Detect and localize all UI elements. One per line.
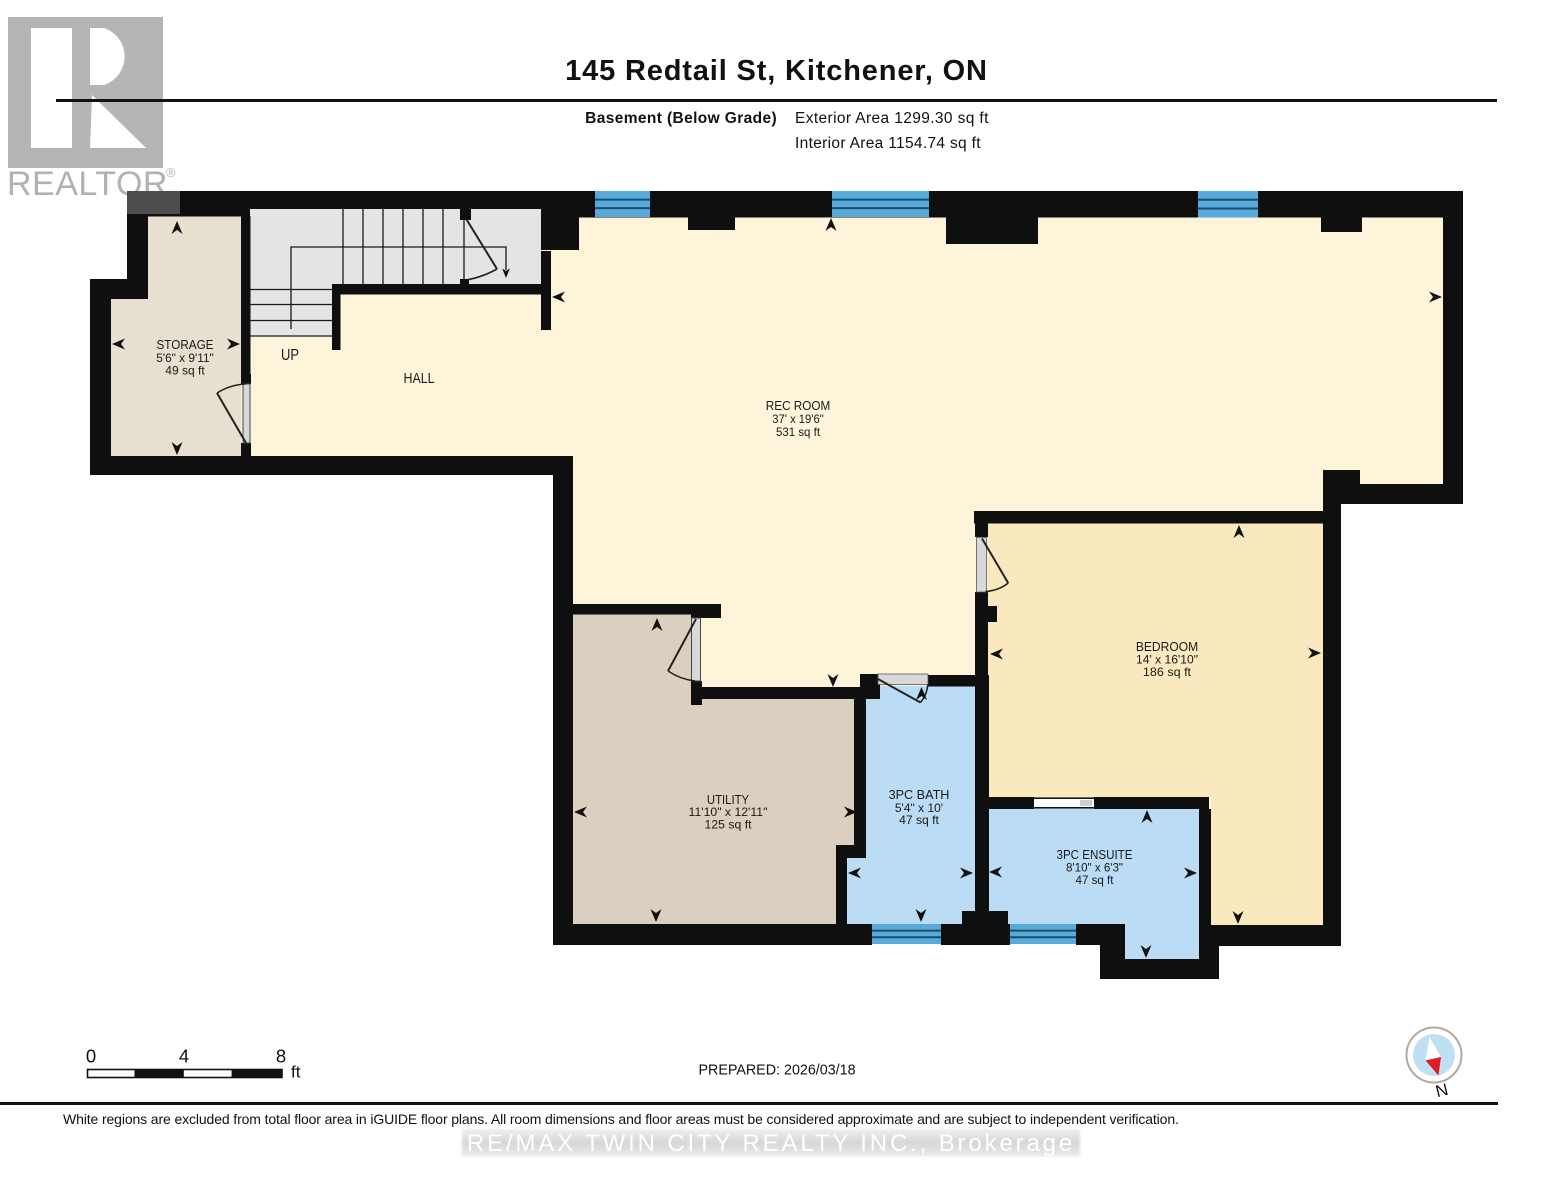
svg-text:4: 4	[179, 1046, 189, 1067]
svg-text:125 sq ft: 125 sq ft	[705, 818, 753, 832]
svg-text:531 sq ft: 531 sq ft	[776, 425, 821, 439]
svg-text:ft: ft	[291, 1063, 301, 1082]
svg-text:47 sq ft: 47 sq ft	[899, 813, 939, 827]
svg-text:HALL: HALL	[404, 370, 435, 387]
svg-text:37' x 19'6": 37' x 19'6"	[772, 412, 823, 426]
svg-text:47 sq ft: 47 sq ft	[1076, 873, 1115, 887]
svg-text:186 sq ft: 186 sq ft	[1143, 665, 1192, 679]
svg-text:STORAGE: STORAGE	[157, 337, 214, 352]
svg-text:PREPARED: 2026/03/18: PREPARED: 2026/03/18	[698, 1063, 855, 1079]
svg-text:8: 8	[276, 1046, 286, 1067]
svg-text:REC ROOM: REC ROOM	[766, 398, 830, 413]
svg-text:RE/MAX TWIN CITY REALTY INC.,: RE/MAX TWIN CITY REALTY INC., Brokerage	[467, 1130, 1075, 1157]
svg-text:49 sq ft: 49 sq ft	[165, 364, 205, 378]
svg-text:N: N	[1434, 1080, 1451, 1101]
svg-text:3PC BATH: 3PC BATH	[889, 787, 950, 802]
svg-text:White regions are excluded fro: White regions are excluded from total fl…	[63, 1111, 1179, 1127]
svg-text:0: 0	[86, 1046, 96, 1067]
svg-text:UP: UP	[281, 347, 299, 364]
